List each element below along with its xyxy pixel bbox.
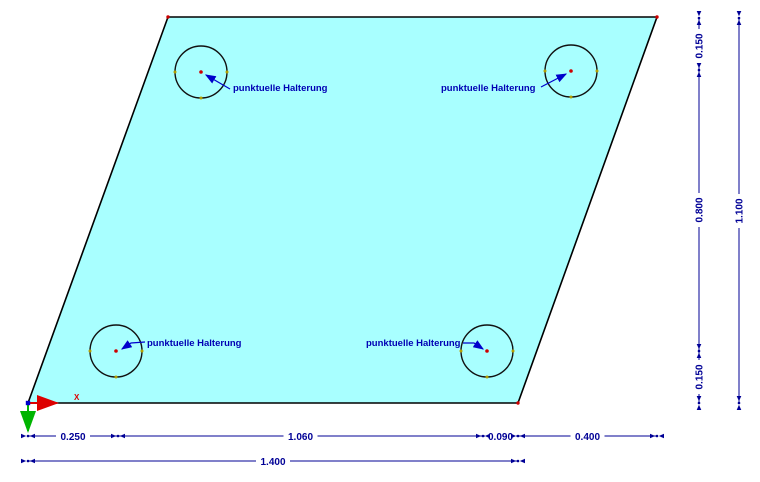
cad-canvas[interactable]: punktuelle Halterung punktuelle Halterun… [0,0,760,482]
dimension-marker [21,434,35,439]
corner-node[interactable] [655,15,658,18]
quadrant-tick [89,350,92,353]
dimension-marker [697,11,702,25]
dimension-marker [697,63,702,77]
support-label: punktuelle Halterung [441,83,536,94]
dimension-value: 1.100 [735,198,746,223]
quadrant-tick [141,350,144,353]
support-label: punktuelle Halterung [366,338,461,349]
quadrant-tick [486,376,489,379]
dimensions-right-outer: 1.100 [734,11,746,410]
plate-surface[interactable] [28,17,657,403]
dimension-marker [737,396,742,410]
dimension-marker [697,344,702,358]
dimension-marker [650,434,664,439]
support-label: punktuelle Halterung [233,83,328,94]
support-label: punktuelle Halterung [147,338,242,349]
quadrant-tick [226,71,229,74]
dimension-value: 0.800 [695,197,706,222]
dimension-value: 0.090 [488,432,513,443]
support-node[interactable] [199,70,203,74]
corner-node[interactable] [166,15,169,18]
support-node[interactable] [569,69,573,73]
quadrant-tick [544,70,547,73]
dimension-value: 0.150 [695,33,706,58]
dimension-marker [111,434,125,439]
x-axis-label: X [74,393,80,402]
dimension-value: 0.150 [695,364,706,389]
quadrant-tick [596,70,599,73]
quadrant-tick [460,350,463,353]
dimensions-bottom-row2: 1.400 [21,456,525,469]
dimension-value: 1.400 [260,457,285,468]
dimension-marker [737,11,742,25]
support-node[interactable] [485,349,489,353]
dimension-marker [511,459,525,464]
support-node[interactable] [114,349,118,353]
dimensions-bottom-row1: 0.250 1.060 0.090 0.400 [21,431,664,444]
quadrant-tick [174,71,177,74]
quadrant-tick [200,97,203,100]
plate [28,15,659,404]
corner-node[interactable] [516,401,519,404]
quadrant-tick [570,96,573,99]
quadrant-tick [512,350,515,353]
dimension-marker [21,459,35,464]
plate-drawing: punktuelle Halterung punktuelle Halterun… [0,0,760,482]
dimensions-right-inner: 0.150 0.800 0.150 [694,11,706,410]
dimension-value: 0.250 [60,432,85,443]
origin-node[interactable] [26,401,30,405]
dimension-marker [697,396,702,410]
dimension-value: 1.060 [288,432,313,443]
dimension-value: 0.400 [575,432,600,443]
quadrant-tick [115,376,118,379]
